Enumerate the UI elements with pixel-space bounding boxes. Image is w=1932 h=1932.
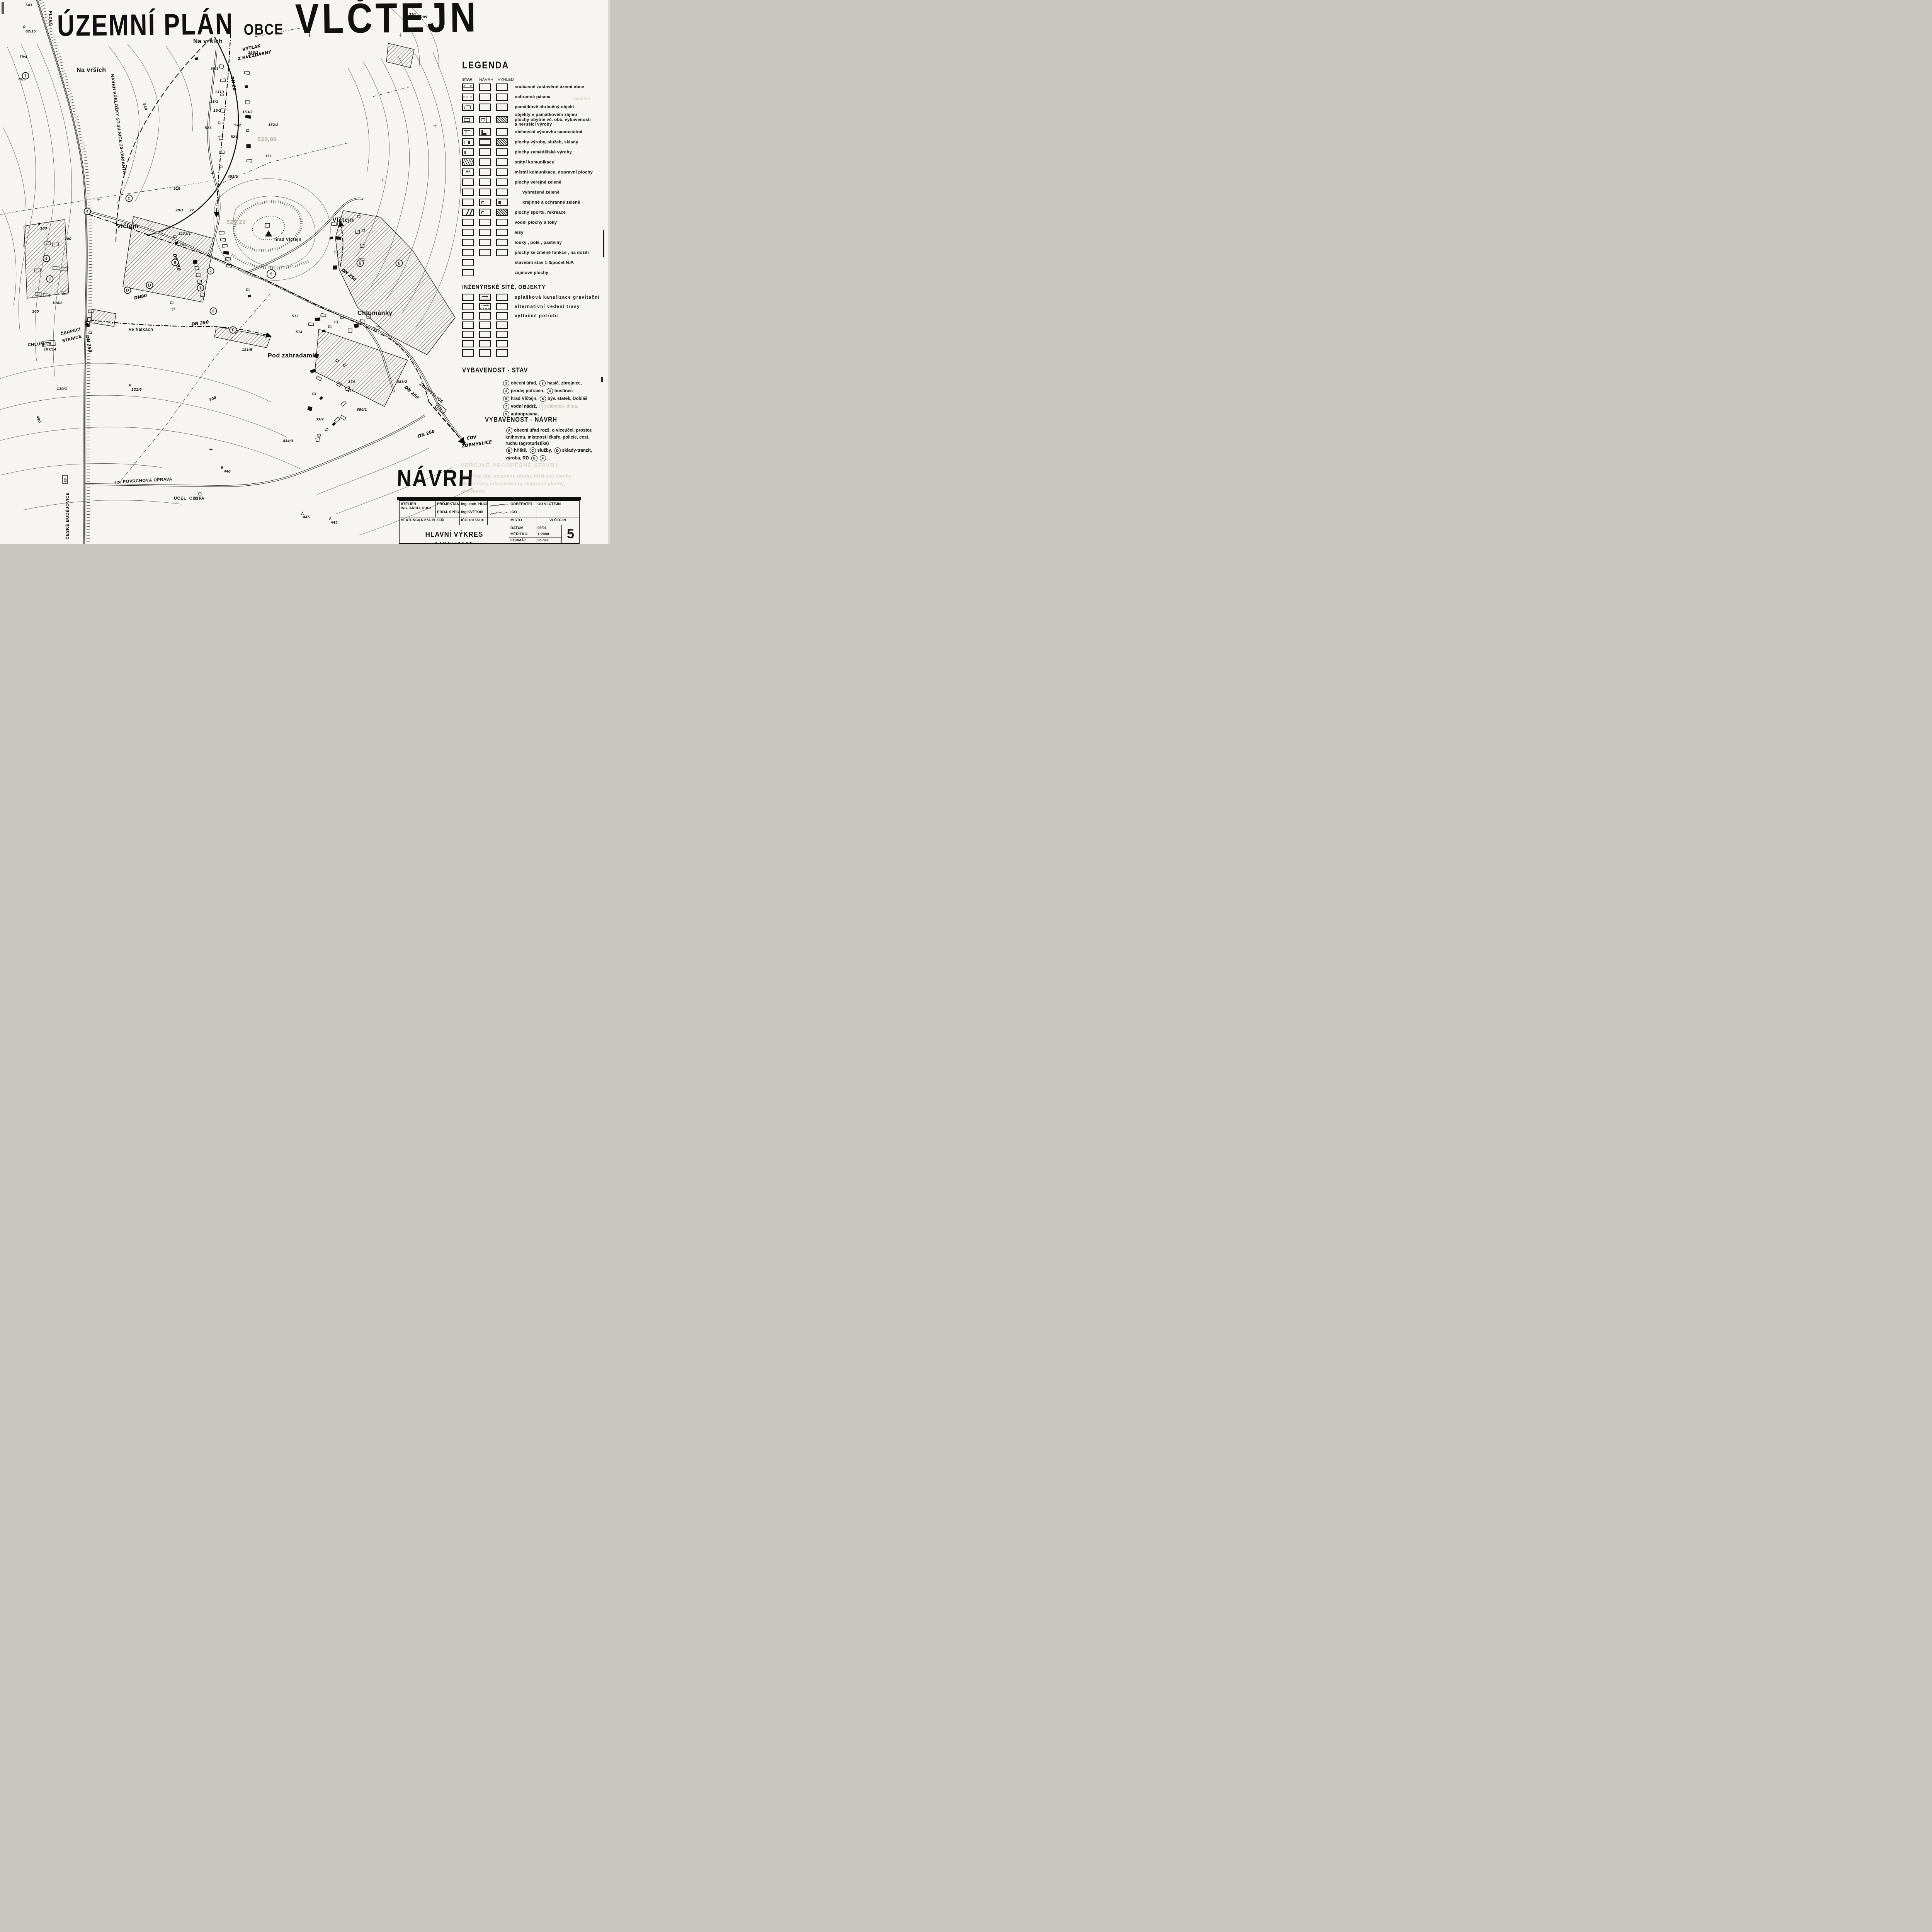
cell-signature-2: [488, 509, 509, 517]
map-label: DN80: [134, 293, 148, 301]
legend-symbol-boxes: [462, 340, 515, 347]
map-label: DN 80: [230, 76, 237, 91]
legend-symbol-box: [479, 158, 491, 166]
facility-marker-C: C: [530, 447, 536, 454]
legend-symbol-box: [462, 349, 474, 357]
cell-signature-1: [488, 501, 509, 509]
map-label: θ: [221, 466, 223, 470]
legend-symbol-box: [462, 199, 474, 206]
building: [220, 238, 226, 241]
map-label: 539: [194, 497, 201, 501]
building: [247, 289, 249, 291]
cell-datum-value: 09/01: [536, 525, 562, 531]
map-marker-2: 2: [207, 268, 214, 274]
cell-blank: [488, 517, 509, 525]
map-label: +: [209, 447, 213, 453]
legend-row: občanská výstavba samostatná: [462, 127, 608, 137]
legend-symbol-a3: [480, 313, 490, 319]
legend-heading: LEGENDA: [462, 60, 608, 71]
facility-marker-E: E: [531, 455, 537, 461]
map-label: 110/1: [57, 387, 67, 391]
facility-text: sklady-tranzit,: [562, 448, 592, 453]
map-marker-B: B: [172, 259, 179, 266]
legend-symbol-box: [462, 138, 474, 146]
ghost-text-pavilon: pavilón: [574, 96, 590, 101]
map-label: +: [97, 196, 101, 202]
map-label: 261: [179, 243, 186, 247]
format-value: 65 /60: [537, 538, 548, 543]
cell-drawing-title: HLAVNÍ VÝKRES KANALIZACE: [400, 525, 509, 544]
legend-symbol-boxes: [462, 269, 515, 276]
legend-symbol-boxes: [462, 189, 515, 196]
legend-row: splašková kanalizace gravitační: [462, 293, 608, 302]
legend-row-label: státní komunikace: [515, 160, 554, 165]
svg-text:B: B: [173, 261, 176, 265]
odberatel-label: ODBĚRATEL: [510, 502, 533, 506]
legend-row-label: plochy ke změně funkce , na dožití: [515, 250, 589, 255]
facility-line: Aobecní úřad rozš. o víceúčel. prostor,: [505, 427, 594, 434]
legend-symbol-box: [496, 94, 508, 101]
map-label: DN 250: [417, 429, 435, 439]
legend-symbol-box: [496, 148, 508, 156]
legend-symbol-box: [462, 179, 474, 186]
facility-text: býv. statek, Dobiáš: [548, 396, 587, 401]
legend-row-label: vodní plochy a toky: [515, 220, 557, 225]
building: [325, 428, 328, 431]
legend-row-label: alternativní vedení trasy: [515, 304, 580, 310]
legend-symbol-box: [496, 294, 508, 301]
title-block-table: ATELIER ING, ARCH, HUCL PROJEKTANT ing, …: [399, 500, 580, 544]
legend-row: plochy zemědělské výroby: [462, 147, 608, 157]
building: [308, 323, 314, 326]
legend-symbol-bldL: [480, 129, 490, 135]
facility-text: hasič. zbrojnice,: [547, 381, 582, 386]
castle-hill: [230, 196, 309, 268]
map-label: 440: [223, 470, 231, 474]
legend-symbol-box: [462, 148, 474, 156]
map-marker-5: 5: [267, 270, 276, 278]
svg-text:6: 6: [45, 257, 48, 261]
legend-symbol-box: [462, 249, 474, 256]
faded-line: větrolamy: [461, 487, 577, 495]
legend-row: alternativní vedení trasy: [462, 302, 608, 311]
building: [219, 136, 223, 139]
map-label: 100: [65, 237, 71, 241]
map-label: 470: [114, 481, 122, 485]
facility-marker-2: 2: [539, 380, 546, 386]
facility-text: výroba, RD: [505, 456, 529, 461]
legend-column-headers: STAV NÁVRH VÝHLED: [462, 77, 608, 82]
map-label: 451/1: [227, 175, 238, 179]
facility-marker-1: 1: [503, 380, 509, 386]
map-label: PLZEŇ: [48, 11, 53, 26]
building: [245, 115, 251, 118]
map-label: 121/6: [131, 388, 142, 392]
legend-symbol-diag2: [463, 209, 473, 215]
legend-symbol-box: [479, 116, 491, 123]
legend-symbol-boxes: [462, 199, 515, 206]
map-label: 375: [347, 389, 354, 393]
cell-ico-number: IČO 18155191: [460, 517, 488, 525]
legend-symbol-box: [462, 189, 474, 196]
legend-row-label: plochy sportu, rekreace: [515, 210, 566, 215]
building: [336, 236, 341, 240]
building: [313, 393, 315, 395]
legend-symbol-box: [462, 209, 474, 216]
map-marker-7: 7: [22, 73, 29, 79]
map-label: θ: [23, 26, 26, 29]
facility-line: Bhřiště,Cslužby,Dsklady-tranzit,: [505, 447, 594, 454]
building: [175, 242, 178, 244]
legend-symbol-box: [462, 303, 474, 310]
legend-symbol-box: [496, 189, 508, 196]
cell-format-value: 65 /60: [536, 537, 562, 544]
map-label: 520,22: [226, 219, 246, 225]
facility-text: hostinec: [554, 389, 573, 393]
title-vlctejn: VLČTEJN: [295, 0, 479, 43]
cell-projspecial-name: ing KVĚTOŇ: [460, 509, 488, 517]
legend-symbol-box: [496, 249, 508, 256]
legend-row-label: památkově chráněný objekt: [515, 104, 574, 110]
legend-symbol-box: [479, 104, 491, 111]
cell-misto-label: MÍSTO: [509, 517, 536, 525]
map-label: DN 250: [191, 320, 209, 327]
map-boxed-label: 179: [435, 403, 446, 414]
map-label: Vlčtejn: [332, 217, 354, 223]
legend-symbol-box: [496, 158, 508, 166]
legend-symbol-box: [496, 303, 508, 310]
map-label: 79/4: [19, 55, 27, 59]
legend-row: objekty v památkovém zájmuplochy obytné …: [462, 112, 608, 127]
legend-row-label: stavební stav 1-3/počet N.P.: [515, 260, 574, 265]
misto-label: MÍSTO: [510, 518, 522, 522]
legend-row: stavební stav 1-3/počet N.P.: [462, 258, 608, 268]
map-marker-1: 1: [197, 285, 204, 291]
facility-line: knihovnu, místnost lékaře, policie, cest…: [505, 435, 594, 440]
facilities-navrh-heading: VYBAVENOST - NÁVRH: [485, 416, 557, 424]
legend-symbol-boxes: [462, 239, 515, 246]
legend-row: plochy ke změně funkce , na dožití: [462, 248, 608, 258]
facility-marker-7: 7: [503, 403, 509, 410]
building: [310, 369, 316, 373]
building: [328, 326, 331, 328]
map-label: 510: [142, 103, 148, 111]
building: [322, 330, 325, 332]
facility-line: 7vodní nádrž,8nábytek- dílna,: [502, 403, 589, 410]
map-label: ČESKÉ BUDĚJOVICE: [65, 492, 70, 539]
cell-odberatel-label: ODBĚRATEL: [509, 501, 536, 509]
legend-symbol-box: [462, 219, 474, 226]
legend-symbol-box: [462, 239, 474, 246]
legend-symbol-bld2: [463, 129, 473, 135]
cell-format-label: FORMÁT: [509, 537, 536, 544]
legend-symbol-box: [462, 94, 474, 101]
building: [354, 324, 359, 328]
svg-text:1: 1: [199, 286, 202, 291]
svg-text:C: C: [48, 277, 51, 282]
atelier-address: BLATENSKÁ 27A PLZEŇ: [401, 518, 444, 522]
map-label: 107/14: [44, 348, 56, 352]
legend-symbol-box: [462, 321, 474, 329]
facility-text: vodní nádrž,: [511, 404, 537, 409]
legend-row: [462, 339, 608, 349]
map-label: θ: [129, 384, 131, 388]
faded-line: hlavní trasy infrastruktury, dopravní pl…: [461, 480, 577, 488]
map-label: +: [433, 123, 437, 129]
atelier-name: ING, ARCH, HUCL: [401, 506, 434, 510]
building: [316, 376, 322, 381]
building: [333, 266, 337, 269]
legend-symbol-boxes: [462, 303, 515, 310]
sheet-number: 5: [567, 527, 574, 542]
faded-line: rozšíření obj. obecního úřadu, hřišťové …: [461, 472, 577, 480]
cell-atelier-address: BLATENSKÁ 27A PLZEŇ: [400, 517, 460, 525]
legend-symbol-box: [462, 83, 474, 91]
cell-sheet-number: 5: [562, 525, 579, 544]
building: [340, 316, 344, 319]
legend-symbol-boxes: [462, 179, 515, 186]
legend-row-label: občanská výstavba samostatná: [515, 129, 582, 135]
legend-col-stav: STAV: [462, 77, 479, 82]
facility-marker-F: F: [540, 455, 546, 461]
legend-symbol-box: [496, 349, 508, 357]
legend-symbol-boxes: [462, 158, 515, 166]
legend-symbol-a2: [480, 304, 490, 310]
legend-symbol-boxes: [462, 209, 515, 216]
legend-symbol-boxes: [462, 219, 515, 226]
building: [218, 122, 221, 124]
map-marker-9: 9: [210, 308, 217, 315]
legend-symbol-box: [462, 168, 474, 176]
legend-panel: LEGENDA STAV NÁVRH VÝHLED současně zasta…: [462, 61, 608, 358]
legend-symbol-box: [479, 138, 491, 146]
map-label: 152/2: [268, 123, 279, 127]
legend-row: vyhražené zeleně: [462, 187, 608, 197]
legend-symbol-box: [479, 83, 491, 91]
legend-symbol-xline: [463, 84, 473, 90]
building: [321, 313, 326, 317]
legend-symbol-box: [462, 259, 474, 266]
legend-symbol-box: [479, 128, 491, 136]
legend-row: státní komunikace: [462, 157, 608, 167]
map-label: 1271/1: [178, 232, 191, 236]
legend-symbol-hatch: [497, 209, 507, 215]
legend-symbol-boxes: [462, 138, 515, 146]
legend-row-label: zájmové plochy: [515, 270, 548, 276]
map-label: 380/1: [357, 408, 367, 412]
title-block: ATELIER ING, ARCH, HUCL PROJEKTANT ing, …: [399, 497, 580, 544]
legend-symbol-box: [462, 158, 474, 166]
legend-symbol-box: [496, 116, 508, 123]
map-label: 153/1: [248, 51, 259, 55]
map-label: Pod zahradami: [268, 352, 314, 359]
building: [348, 329, 352, 332]
meritko-value: 1:2000: [537, 532, 549, 536]
legend-row: lesy: [462, 228, 608, 238]
legend-symbol-box: [479, 340, 491, 347]
legend-row: plochy výroby, služeb, sklady: [462, 137, 608, 147]
cell-cvykresu: Č. VÝKRESU: [509, 544, 579, 544]
scan-artifact: [601, 377, 603, 382]
facility-text: obecní úřad rozš. o víceúčel. prostor,: [514, 428, 592, 433]
legend-symbol-diag: [463, 159, 473, 165]
facility-text: ruchu (agroturistika): [505, 441, 549, 446]
building: [245, 100, 249, 104]
ico-label: IČO: [510, 510, 517, 514]
map-label: 13/1: [210, 100, 218, 104]
map-marker-4: 4: [84, 208, 91, 215]
faded-paragraph: rozšíření obj. obecního úřadu, hřišťové …: [461, 472, 577, 495]
facility-marker-A: A: [506, 427, 512, 434]
legend-symbol-box: [496, 179, 508, 186]
legend-symbol-lines: [480, 139, 490, 145]
map-marker-E: E: [396, 260, 403, 267]
legend-symbol-box: [479, 312, 491, 320]
legend-symbol-box: [479, 321, 491, 329]
facilities-stav-heading: VYBAVENOST - STAV: [462, 367, 528, 374]
map-marker-6: 6: [43, 255, 50, 262]
legend-rows: současně zastavěné území obceochranná pá…: [462, 82, 608, 278]
building: [246, 129, 249, 132]
facility-marker-B: B: [506, 447, 512, 454]
legend-symbol-boxes: [462, 249, 515, 256]
svg-text:1776: 1776: [43, 342, 51, 346]
building: [219, 231, 224, 234]
legend-symbol-boxes: [462, 321, 515, 329]
map-label: 445: [303, 515, 310, 519]
legend-symbol-box: [496, 239, 508, 246]
legend-symbol-box: [462, 229, 474, 236]
map-label: Chlumánky: [357, 310, 393, 316]
legend-row-label: místní komunikace, dopravní plochy: [515, 170, 593, 175]
legend-symbol-box: [479, 94, 491, 101]
map-label: hrad Vlčtejn: [274, 237, 301, 242]
legend-symbol-box: [462, 331, 474, 338]
map-marker-B: B: [357, 260, 364, 267]
svg-text:7: 7: [24, 74, 27, 78]
building: [318, 434, 320, 436]
legend-row-label: lesy: [515, 230, 524, 235]
facilities-stav-list: 1obecní úřad,2hasič. zbrojnice,3prodej p…: [502, 380, 589, 419]
legend-row-label: louky , pole , pastviny: [515, 240, 562, 245]
building: [335, 321, 337, 323]
facility-line: ruchu (agroturistika): [505, 441, 594, 446]
legend-col-vyhled: VÝHLED: [498, 77, 514, 82]
legend-symbol-box: [479, 168, 491, 176]
svg-text:D: D: [148, 284, 151, 288]
legend-row: památkově chráněný objekt: [462, 102, 608, 112]
tree-icons: ∧∧○: [198, 491, 332, 522]
svg-text:D: D: [126, 289, 129, 293]
map-label: ZDEMYSLICE: [461, 439, 493, 449]
legend-row-label: krajinné a ochranné zeleně: [515, 200, 580, 205]
map-label: 151: [265, 155, 272, 158]
projspecial-name: ing KVĚTOŇ: [461, 510, 483, 514]
odberatel-value: OÚ VLČTEJN: [537, 502, 561, 506]
cell-projspecial-label: PROJ. SPECIAL: [436, 509, 460, 517]
map-label: 62/15: [26, 30, 36, 34]
map-label: 374: [348, 380, 355, 384]
map-label: 13/2: [213, 109, 221, 113]
legend-row: [462, 321, 608, 330]
map-label: 35/1: [211, 67, 219, 71]
legend-row-label: výtlačné potrubí: [515, 313, 558, 319]
legend-symbol-box: [496, 168, 508, 176]
map-label: 543: [26, 3, 32, 7]
map-label: 490: [35, 415, 41, 423]
facility-text: hrad Vlčtejn,: [511, 396, 537, 401]
building: [87, 325, 89, 327]
legend-symbol-box: [462, 104, 474, 111]
map-label: 105: [32, 310, 39, 314]
datum-label: DATUM: [510, 526, 524, 530]
building: [340, 415, 346, 420]
network-rows: splašková kanalizace gravitačníalternati…: [462, 293, 608, 358]
building: [170, 302, 173, 304]
map-label: 27: [189, 209, 194, 213]
legend-symbol-boxes: [462, 168, 515, 176]
building: [334, 417, 340, 423]
map-label: 514: [296, 330, 303, 334]
legend-symbol-box: [462, 312, 474, 320]
map-label: Ve fialkách: [129, 327, 153, 332]
legend-symbol-boxes: [462, 116, 515, 123]
map-marker-C: C: [126, 195, 133, 202]
cell-ico-label: IČO: [509, 509, 536, 517]
cell-meritko-label: MĚŘÍTKO: [509, 531, 536, 537]
legend-symbol-box: [462, 128, 474, 136]
legend-col-navrh: NÁVRH: [479, 77, 498, 82]
legend-row: výtlačné potrubí: [462, 311, 608, 321]
sheet-title: ÚZEMNÍ PLÁN OBCE VLČTEJN: [57, 1, 479, 46]
legend-symbol-bldP: [463, 139, 473, 145]
cell-misto-value: VLČTEJN: [536, 517, 579, 525]
title-obce: OBCE: [244, 20, 284, 39]
legend-symbol-box: [462, 294, 474, 301]
svg-text:4: 4: [86, 210, 88, 214]
map-label: +: [381, 177, 385, 183]
legend-symbol-box: [479, 294, 491, 301]
building: [332, 422, 335, 425]
building: [314, 354, 319, 358]
cell-projektant-label: PROJEKTANT: [436, 501, 460, 509]
map-label: ZDEMYSLICE: [418, 382, 444, 405]
svg-text:C: C: [128, 197, 130, 201]
building: [172, 308, 175, 310]
legend-symbol-box: [462, 116, 474, 123]
map-label: 29/1: [175, 209, 184, 213]
legend-row: krajinné a ochranné zeleně: [462, 197, 608, 207]
atelier-label: ATELIER: [401, 502, 434, 506]
facility-marker-4: 4: [547, 388, 553, 394]
map-label: 383/2: [397, 380, 407, 384]
facility-text: knihovnu, místnost lékaře, policie, cest…: [505, 435, 589, 440]
legend-row-label: vyhražené zeleně: [515, 190, 560, 195]
building: [330, 237, 333, 239]
map-marker-F: F: [230, 327, 236, 333]
svg-text:F: F: [232, 328, 234, 333]
map-label: 520,89: [257, 137, 277, 143]
legend-symbol-box: [496, 312, 508, 320]
castle-icon: [265, 223, 270, 227]
map-label: 519: [173, 187, 180, 191]
legend-row: zájmové plochy: [462, 268, 608, 278]
legend-symbol-box: [479, 179, 491, 186]
facility-marker-6: 6: [540, 396, 546, 402]
building: [193, 260, 197, 264]
legend-symbol-box: [496, 229, 508, 236]
legend-row-label: splašková kanalizace gravitační: [515, 295, 600, 300]
